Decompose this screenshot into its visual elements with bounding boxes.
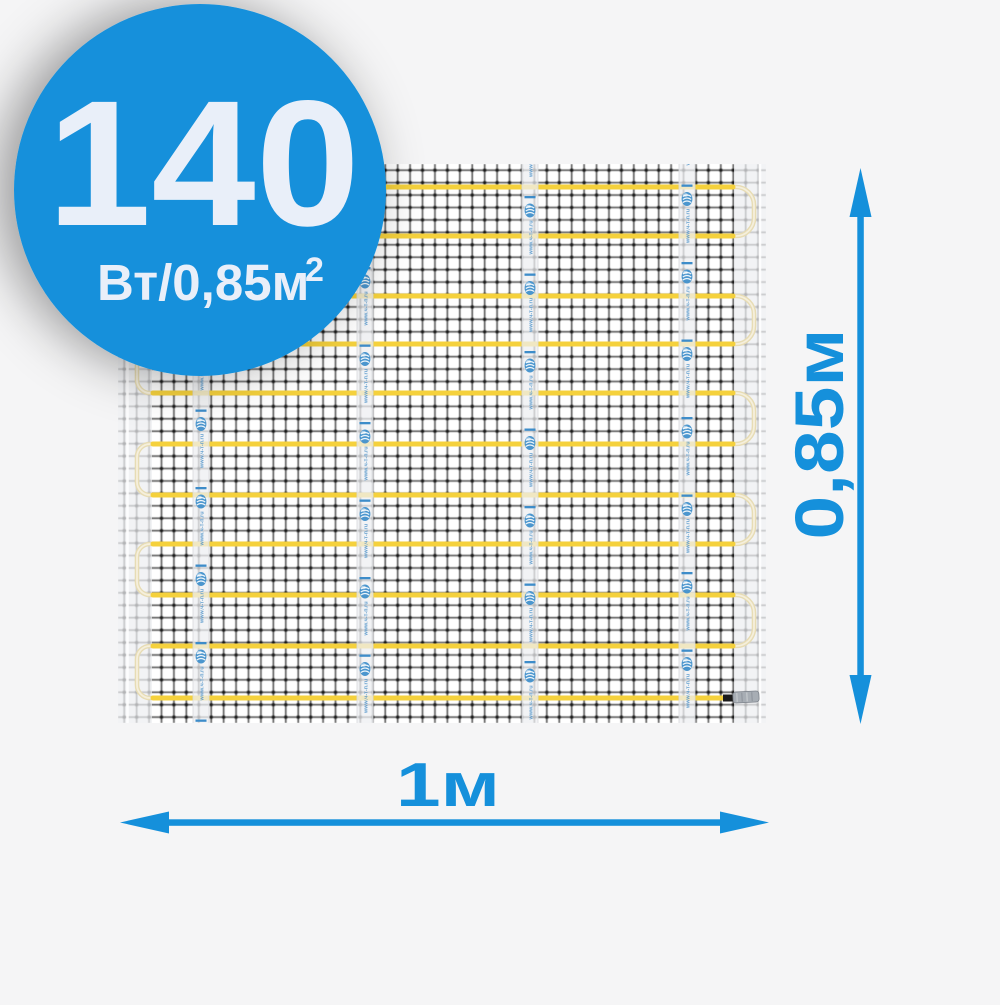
svg-text:www.ч-т-п.ru: www.ч-т-п.ru [364,369,370,404]
svg-text:www.ч-т-п.ru: www.ч-т-п.ru [529,530,535,565]
svg-text:www.ч-т-п.ru: www.ч-т-п.ru [686,596,692,631]
svg-text:140: 140 [47,63,360,263]
svg-text:www.ч-т-п.ru: www.ч-т-п.ru [364,601,370,636]
svg-text:www.ч-т-п.ru: www.ч-т-п.ru [529,298,535,333]
svg-text:www.ч-т-п.ru: www.ч-т-п.ru [686,674,692,709]
svg-text:www.ч-т-п.ru: www.ч-т-п.ru [686,209,692,244]
svg-text:www.ч-т-п.ru: www.ч-т-п.ru [529,375,535,410]
svg-text:Вт/0,85м: Вт/0,85м [97,254,309,311]
svg-text:www.ч-т-п.ru: www.ч-т-п.ru [200,666,206,701]
svg-text:www.ч-т-п.ru: www.ч-т-п.ru [364,524,370,559]
svg-text:www.ч-т-п.ru: www.ч-т-п.ru [364,446,370,481]
svg-text:www.ч-т-п.ru: www.ч-т-п.ru [200,511,206,546]
svg-text:www.ч-т-п.ru: www.ч-т-п.ru [686,286,692,321]
svg-text:0,85м: 0,85м [781,329,858,540]
svg-text:1м: 1м [396,751,500,820]
svg-text:www.ч-т-п.ru: www.ч-т-п.ru [529,608,535,643]
svg-text:www.ч-т-п.ru: www.ч-т-п.ru [529,685,535,720]
svg-text:www.ч-т-п.ru: www.ч-т-п.ru [529,453,535,488]
svg-text:www.ч-т-п.ru: www.ч-т-п.ru [200,589,206,624]
svg-text:www.ч-т-п.ru: www.ч-т-п.ru [686,441,692,476]
svg-text:www.ч-т-п.ru: www.ч-т-п.ru [529,220,535,255]
svg-text:www.ч-т-п.ru: www.ч-т-п.ru [686,519,692,554]
svg-text:2: 2 [305,251,324,289]
svg-text:www.ч-т-п.ru: www.ч-т-п.ru [686,364,692,399]
svg-text:www.ч-т-п.ru: www.ч-т-п.ru [200,434,206,469]
svg-text:www.ч-т-п.ru: www.ч-т-п.ru [364,679,370,714]
svg-text:www.ч-т-п.ru: www.ч-т-п.ru [364,291,370,326]
